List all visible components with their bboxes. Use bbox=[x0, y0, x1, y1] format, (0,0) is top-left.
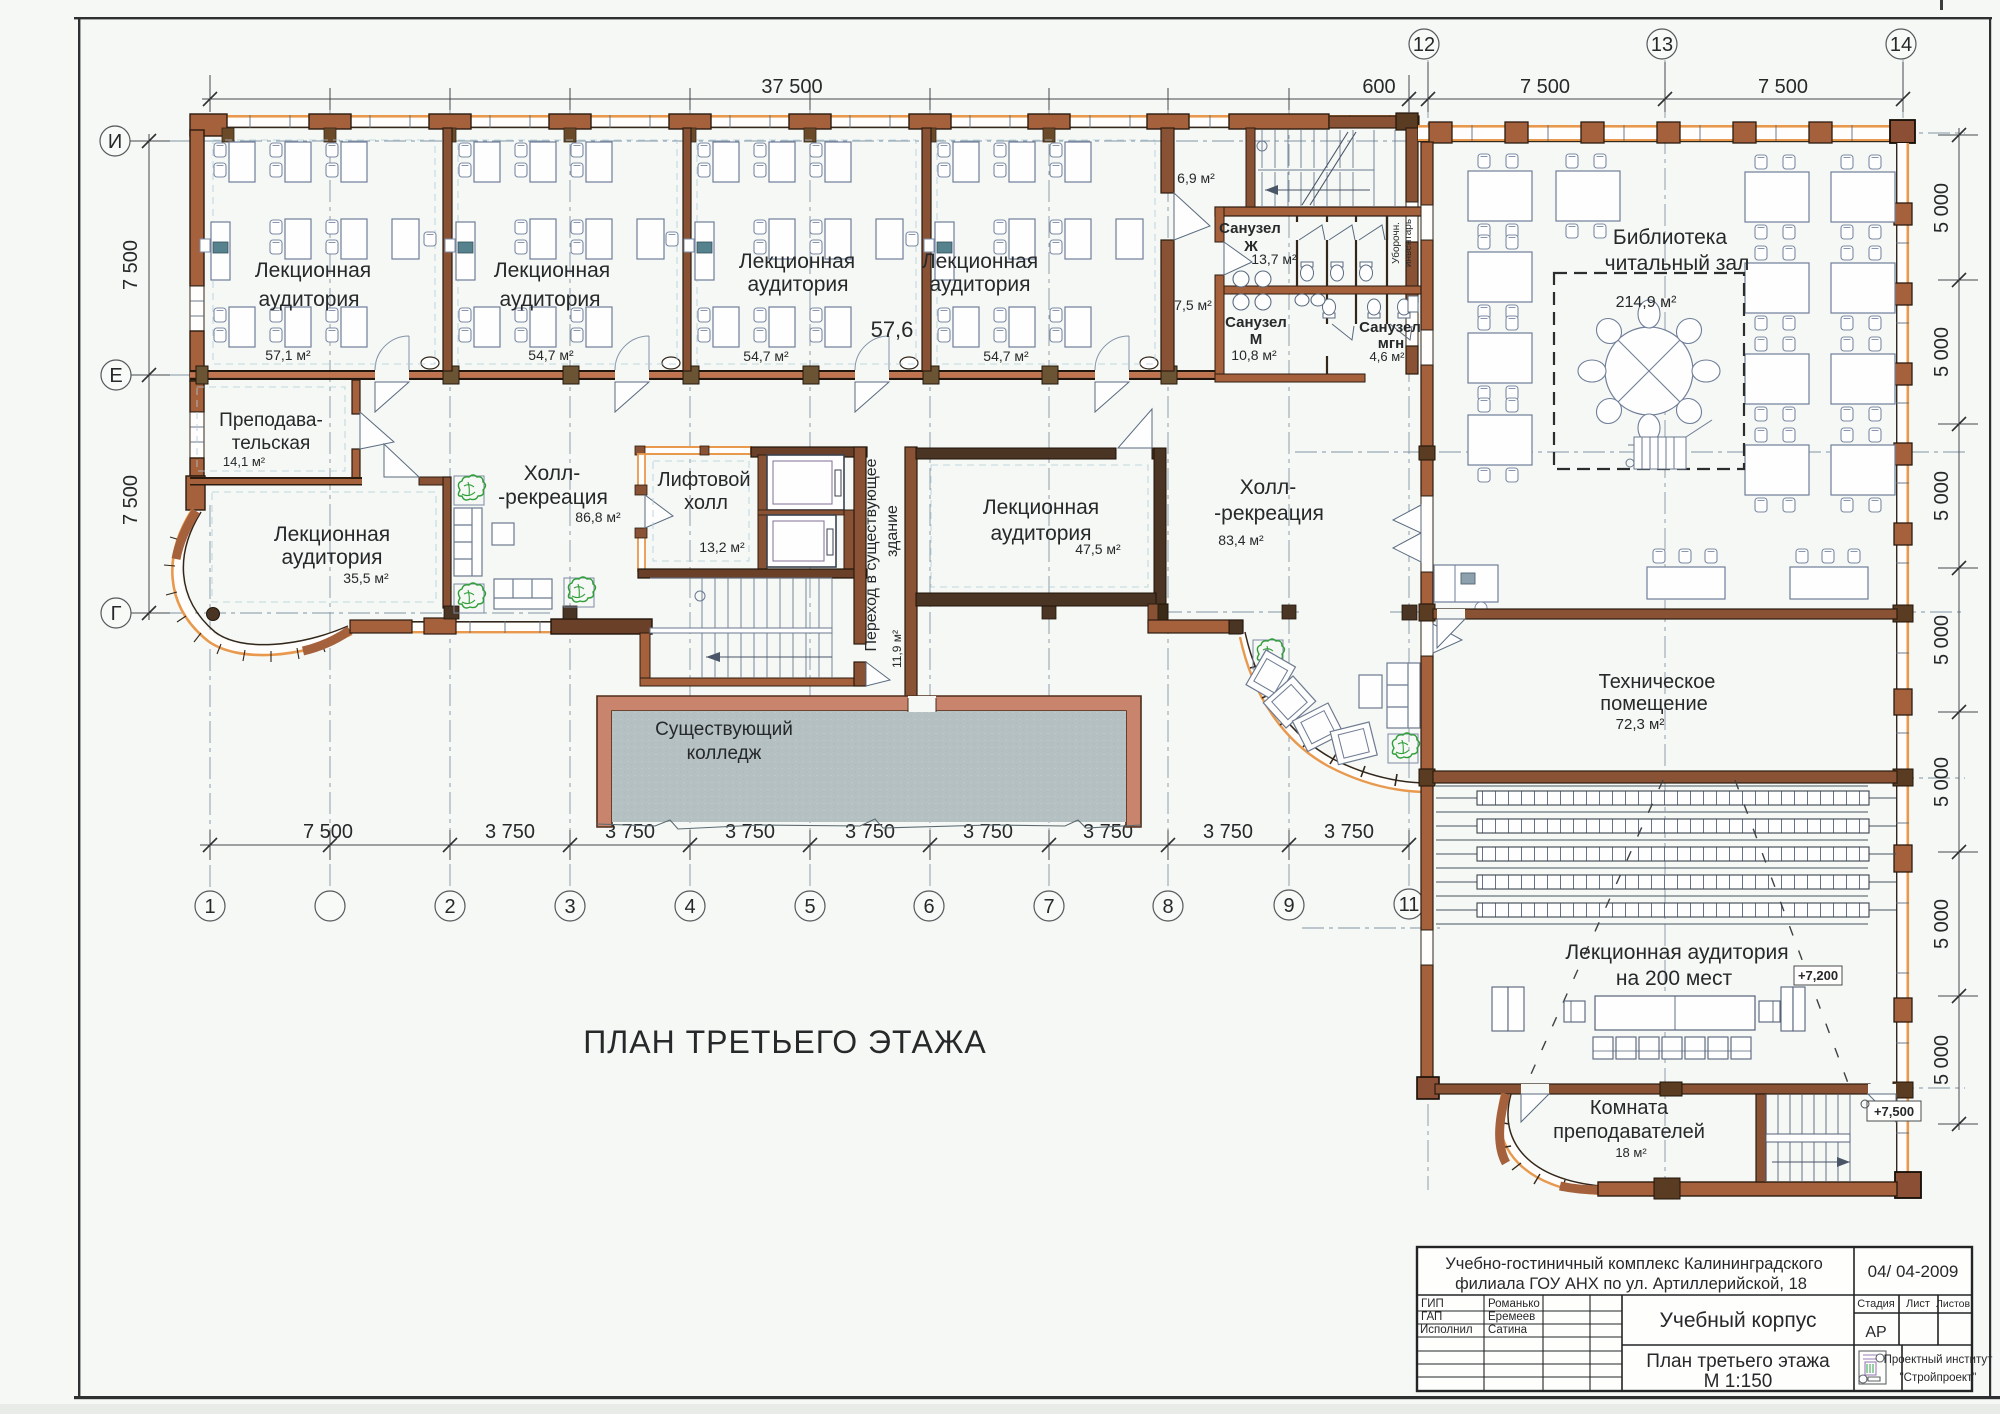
svg-text:АР: АР bbox=[1865, 1324, 1886, 1341]
svg-text:1: 1 bbox=[204, 896, 215, 918]
svg-text:3 750: 3 750 bbox=[963, 821, 1013, 843]
svg-text:35,5 м²: 35,5 м² bbox=[343, 570, 389, 586]
svg-text:Лекционная аудитория: Лекционная аудитория bbox=[1565, 941, 1788, 964]
svg-text:Уборочн.: Уборочн. bbox=[1390, 222, 1402, 264]
svg-text:13,7 м²: 13,7 м² bbox=[1251, 251, 1297, 267]
svg-text:3 750: 3 750 bbox=[1324, 821, 1374, 843]
svg-text:57,1 м²: 57,1 м² bbox=[265, 347, 311, 363]
svg-text:Переход в существующее: Переход в существующее bbox=[863, 458, 880, 651]
svg-text:холл: холл bbox=[684, 492, 728, 514]
svg-text:11: 11 bbox=[1399, 894, 1420, 916]
svg-text:3 750: 3 750 bbox=[1203, 821, 1253, 843]
svg-text:Лифтовой: Лифтовой bbox=[657, 469, 750, 491]
svg-text:12: 12 bbox=[1413, 34, 1435, 56]
svg-text:+7,200: +7,200 bbox=[1798, 968, 1838, 983]
svg-text:аудитория: аудитория bbox=[929, 273, 1030, 296]
svg-text:Исполнил: Исполнил bbox=[1420, 1324, 1473, 1336]
svg-text:10,8 м²: 10,8 м² bbox=[1231, 347, 1277, 363]
svg-text:Лекционная: Лекционная bbox=[274, 523, 390, 546]
svg-text:7,5 м²: 7,5 м² bbox=[1174, 297, 1212, 313]
svg-text:7 500: 7 500 bbox=[1520, 76, 1570, 98]
svg-text:Листов: Листов bbox=[1936, 1298, 1971, 1310]
svg-text:5 000: 5 000 bbox=[1931, 757, 1953, 807]
svg-text:7 500: 7 500 bbox=[1758, 76, 1808, 98]
svg-text:9: 9 bbox=[1283, 895, 1294, 917]
svg-text:7 500: 7 500 bbox=[303, 821, 353, 843]
svg-text:преподавателей: преподавателей bbox=[1553, 1121, 1705, 1143]
svg-text:ПЛАН ТРЕТЬЕГО ЭТАЖА: ПЛАН ТРЕТЬЕГО ЭТАЖА bbox=[583, 1024, 987, 1060]
svg-text:7 500: 7 500 bbox=[120, 240, 142, 290]
svg-text:-рекреация: -рекреация bbox=[498, 486, 608, 509]
svg-text:Е: Е bbox=[109, 365, 122, 387]
svg-text:18 м²: 18 м² bbox=[1615, 1145, 1647, 1160]
svg-text:Лекционная: Лекционная bbox=[494, 259, 610, 282]
svg-text:13,2 м²: 13,2 м² bbox=[699, 539, 745, 555]
svg-text:аудитория: аудитория bbox=[747, 273, 848, 296]
svg-text:Лекционная: Лекционная bbox=[922, 250, 1038, 273]
svg-text:7 500: 7 500 bbox=[120, 475, 142, 525]
svg-text:7: 7 bbox=[1043, 896, 1054, 918]
svg-text:План третьего этажа: План третьего этажа bbox=[1646, 1351, 1830, 1372]
svg-text:помещение: помещение bbox=[1600, 693, 1708, 715]
svg-text:14: 14 bbox=[1890, 34, 1912, 56]
svg-text:5: 5 bbox=[804, 896, 815, 918]
svg-text:Преподава-: Преподава- bbox=[219, 410, 323, 431]
svg-text:"Стройпроект": "Стройпроект" bbox=[1900, 1372, 1977, 1384]
svg-text:Холл-: Холл- bbox=[524, 462, 581, 485]
svg-text:Романько: Романько bbox=[1488, 1298, 1540, 1310]
svg-text:5 000: 5 000 bbox=[1931, 327, 1953, 377]
svg-text:Санузел: Санузел bbox=[1225, 314, 1287, 331]
svg-text:Лекционная: Лекционная bbox=[739, 250, 855, 273]
svg-text:4,6 м²: 4,6 м² bbox=[1370, 349, 1406, 364]
svg-text:14,1 м²: 14,1 м² bbox=[223, 454, 266, 469]
svg-text:13: 13 bbox=[1651, 34, 1673, 56]
svg-text:57,6: 57,6 bbox=[871, 317, 914, 342]
svg-text:54,7 м²: 54,7 м² bbox=[528, 347, 574, 363]
svg-text:Библиотека: Библиотека bbox=[1613, 226, 1728, 249]
svg-text:аудитория: аудитория bbox=[281, 546, 382, 569]
svg-text:5 000: 5 000 bbox=[1931, 471, 1953, 521]
svg-text:214,9 м²: 214,9 м² bbox=[1616, 294, 1677, 311]
svg-text:6: 6 bbox=[923, 896, 934, 918]
svg-text:колледж: колледж bbox=[687, 743, 762, 764]
svg-text:5 000: 5 000 bbox=[1931, 615, 1953, 665]
svg-text:Проектный институт: Проектный институт bbox=[1884, 1354, 1993, 1366]
svg-text:4: 4 bbox=[684, 896, 695, 918]
svg-text:-рекреация: -рекреация bbox=[1214, 502, 1324, 525]
svg-text:5 000: 5 000 bbox=[1931, 899, 1953, 949]
svg-text:Еремеев: Еремеев bbox=[1488, 1311, 1535, 1323]
svg-text:3 750: 3 750 bbox=[485, 821, 535, 843]
svg-text:72,3 м²: 72,3 м² bbox=[1616, 716, 1665, 733]
svg-text:Сатина: Сатина bbox=[1488, 1324, 1528, 1336]
svg-text:83,4 м²: 83,4 м² bbox=[1218, 532, 1264, 548]
svg-text:Учебный корпус: Учебный корпус bbox=[1660, 1309, 1817, 1332]
svg-text:600: 600 bbox=[1362, 76, 1395, 98]
svg-text:ГИП: ГИП bbox=[1421, 1298, 1444, 1310]
svg-text:Холл-: Холл- bbox=[1240, 476, 1297, 499]
svg-text:+7,500: +7,500 bbox=[1874, 1104, 1914, 1119]
svg-text:Существующий: Существующий bbox=[655, 719, 793, 740]
svg-text:Санузел: Санузел bbox=[1219, 220, 1281, 237]
svg-text:Г: Г bbox=[111, 603, 122, 625]
svg-text:И: И bbox=[108, 131, 122, 153]
svg-text:Лист: Лист bbox=[1906, 1298, 1930, 1310]
svg-text:читальный зал: читальный зал bbox=[1605, 252, 1750, 275]
svg-text:здание: здание bbox=[884, 505, 901, 557]
svg-text:тельская: тельская bbox=[232, 433, 311, 454]
svg-text:04/ 04-2009: 04/ 04-2009 bbox=[1868, 1262, 1959, 1281]
svg-text:Комната: Комната bbox=[1590, 1097, 1669, 1119]
svg-text:Лекционная: Лекционная bbox=[255, 259, 371, 282]
svg-text:3: 3 bbox=[564, 896, 575, 918]
svg-text:5 000: 5 000 bbox=[1931, 183, 1953, 233]
svg-text:Техническое: Техническое bbox=[1599, 671, 1716, 693]
svg-text:3 750: 3 750 bbox=[845, 821, 895, 843]
svg-text:37 500: 37 500 bbox=[761, 76, 822, 98]
svg-text:филиала ГОУ АНХ по ул. Артилле: филиала ГОУ АНХ по ул. Артиллерийской, 1… bbox=[1455, 1275, 1807, 1293]
svg-text:М 1:150: М 1:150 bbox=[1704, 1371, 1773, 1392]
svg-text:аудитория: аудитория bbox=[258, 288, 359, 311]
svg-text:2: 2 bbox=[444, 896, 455, 918]
svg-text:аудитория: аудитория bbox=[499, 288, 600, 311]
svg-text:6,9 м²: 6,9 м² bbox=[1177, 170, 1215, 186]
svg-text:5 000: 5 000 bbox=[1931, 1035, 1953, 1085]
svg-text:Учебно-гостиничный комплекс Ка: Учебно-гостиничный комплекс Калининградс… bbox=[1445, 1255, 1823, 1273]
svg-text:54,7 м²: 54,7 м² bbox=[983, 348, 1029, 364]
svg-text:инвентарь: инвентарь bbox=[1403, 219, 1414, 267]
svg-text:Стадия: Стадия bbox=[1857, 1298, 1895, 1310]
svg-text:86,8 м²: 86,8 м² bbox=[575, 509, 621, 525]
svg-text:ГАП: ГАП bbox=[1421, 1311, 1442, 1323]
svg-text:Лекционная: Лекционная bbox=[983, 496, 1099, 519]
svg-text:54,7 м²: 54,7 м² bbox=[743, 348, 789, 364]
svg-text:на 200 мест: на 200 мест bbox=[1616, 967, 1733, 990]
svg-text:11,9 м²: 11,9 м² bbox=[890, 630, 904, 668]
svg-text:47,5 м²: 47,5 м² bbox=[1075, 541, 1121, 557]
svg-text:3 750: 3 750 bbox=[725, 821, 775, 843]
svg-text:8: 8 bbox=[1162, 896, 1173, 918]
svg-text:М: М bbox=[1250, 331, 1263, 348]
svg-text:Санузел: Санузел bbox=[1359, 319, 1421, 336]
